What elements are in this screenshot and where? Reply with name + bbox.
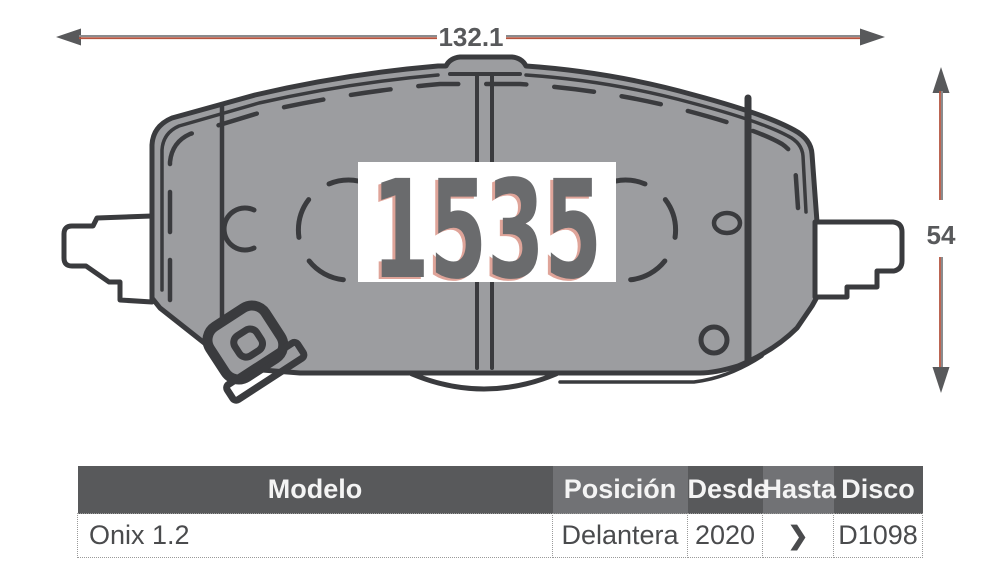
left-ear-tab [64, 216, 152, 302]
cell-desde: 2020 [688, 514, 763, 558]
arrow-down-icon [933, 367, 950, 393]
right-ear-tab [815, 222, 902, 297]
arrow-up-icon [933, 67, 950, 93]
arrow-right-icon [860, 29, 885, 46]
width-dimension-label: 132.1 [438, 22, 503, 52]
part-number: 1535 [372, 152, 602, 310]
header-desde: Desde [688, 466, 763, 514]
cell-disco: D1098 [834, 514, 923, 558]
header-modelo: Modelo [78, 466, 553, 514]
table-row: Onix 1.2 Delantera 2020 ❯ D1098 [78, 514, 923, 558]
header-hasta: Hasta [763, 466, 834, 514]
cell-modelo: Onix 1.2 [78, 514, 553, 558]
brake-pad-drawing: 132.1 54 [0, 0, 1000, 465]
height-dimension: 54 [927, 67, 956, 393]
application-table: Modelo Posición Desde Hasta Disco Onix 1… [77, 466, 923, 558]
height-dimension-label: 54 [927, 220, 956, 250]
table-body: Onix 1.2 Delantera 2020 ❯ D1098 [78, 514, 923, 558]
arrow-left-icon [56, 29, 81, 46]
bottom-dip-arc [412, 374, 556, 389]
catalog-figure: 132.1 54 [0, 0, 1000, 583]
header-posicion: Posición [553, 466, 688, 514]
width-dimension: 132.1 [56, 22, 885, 52]
cell-hasta-onwards-icon: ❯ [763, 514, 834, 558]
header-row: Modelo Posición Desde Hasta Disco [78, 466, 923, 514]
header-disco: Disco [834, 466, 923, 514]
table-header: Modelo Posición Desde Hasta Disco [78, 466, 923, 514]
cell-posicion: Delantera [553, 514, 688, 558]
part-number-label: 1535 1535 [358, 152, 616, 312]
